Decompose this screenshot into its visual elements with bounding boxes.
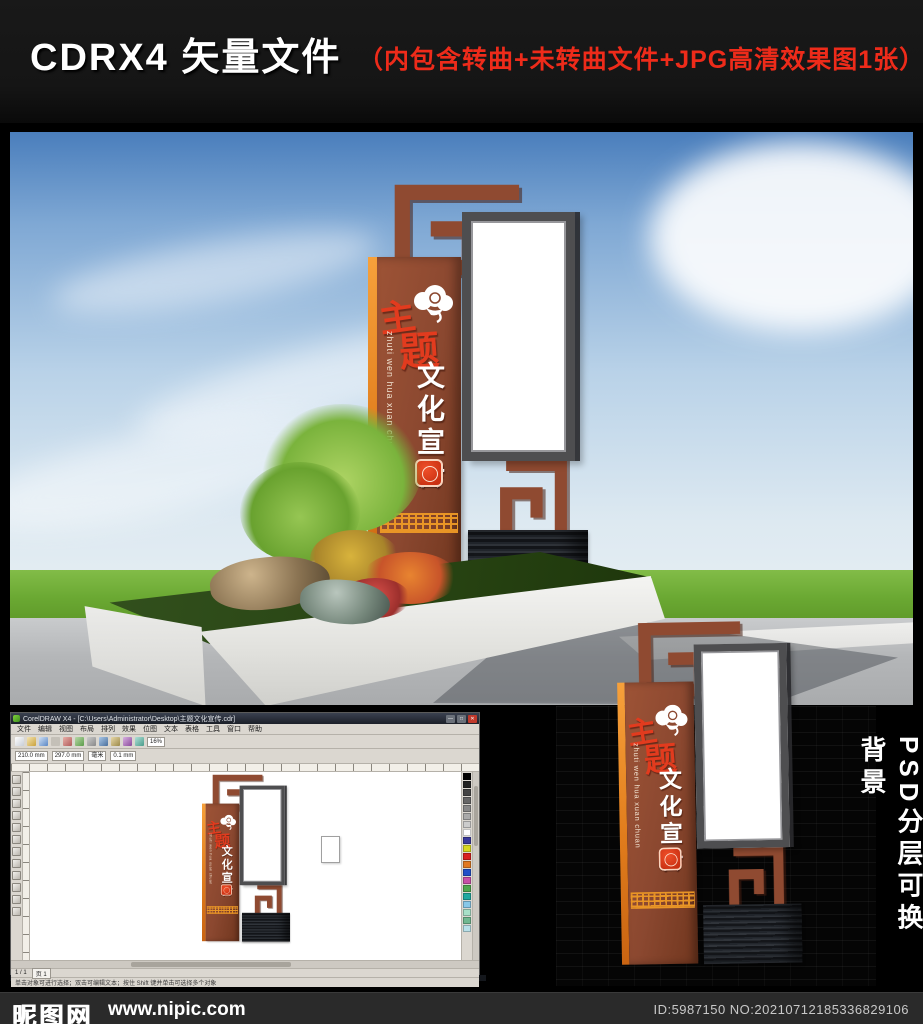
shape-tool-icon[interactable] [12, 787, 21, 796]
menu-layout[interactable]: 布局 [80, 724, 94, 734]
fret-border-band [207, 906, 238, 914]
vertical-ruler [23, 772, 30, 960]
palette-swatch[interactable] [463, 845, 471, 852]
freehand-tool-icon[interactable] [12, 823, 21, 832]
palette-swatch[interactable] [463, 901, 471, 908]
horizontal-ruler [11, 764, 479, 772]
import-icon[interactable] [123, 737, 132, 746]
undo-icon[interactable] [99, 737, 108, 746]
text-tool-icon[interactable] [12, 883, 21, 892]
secondary-signpost-render: 主 题 zhuti wen hua xuan chuan 文化宣传 [616, 615, 811, 971]
footer-bar: 昵图网 www.nipic.com ID:5987150 NO:20210712… [0, 992, 923, 1024]
menu-bar: 文件 编辑 视图 布局 排列 效果 位图 文本 表格 工具 窗口 帮助 [11, 724, 479, 735]
palette-swatch[interactable] [463, 909, 471, 916]
fill-tool-icon[interactable] [12, 907, 21, 916]
pick-tool-icon[interactable] [12, 775, 21, 784]
page-tab[interactable]: 页 1 [32, 968, 51, 979]
ellipse-tool-icon[interactable] [12, 859, 21, 868]
title-bar[interactable]: CorelDRAW X4 - [C:\Users\Administrator\D… [11, 713, 479, 724]
page-height-field[interactable]: 297.0 mm [52, 751, 85, 761]
palette-swatch[interactable] [463, 805, 471, 812]
page-subtitle: （内包含转曲+未转曲文件+JPG高清效果图1张） [358, 40, 923, 76]
save-icon[interactable] [39, 737, 48, 746]
palette-swatch[interactable] [463, 917, 471, 924]
sign-panel: 主 题 zhuti wen hua xuan chuan 文化宣传 [206, 804, 240, 942]
palette-swatch[interactable] [463, 813, 471, 820]
redo-icon[interactable] [111, 737, 120, 746]
nudge-field[interactable]: 0.1 mm [110, 751, 136, 761]
print-icon[interactable] [51, 737, 60, 746]
menu-edit[interactable]: 编辑 [38, 724, 52, 734]
color-palette [461, 772, 472, 960]
page: CDRX4 矢量文件 （内包含转曲+未转曲文件+JPG高清效果图1张） [0, 0, 923, 1024]
new-icon[interactable] [15, 737, 24, 746]
smart-fill-tool-icon[interactable] [12, 835, 21, 844]
export-icon[interactable] [135, 737, 144, 746]
menu-arrange[interactable]: 排列 [101, 724, 115, 734]
menu-tools[interactable]: 工具 [206, 724, 220, 734]
psd-layer-note: PSD分层可换背景 [854, 736, 923, 946]
coreldraw-window: CorelDRAW X4 - [C:\Users\Administrator\D… [10, 712, 480, 975]
palette-swatch[interactable] [463, 877, 471, 884]
round-seal-icon [659, 847, 682, 870]
menu-bitmaps[interactable]: 位图 [143, 724, 157, 734]
palette-swatch[interactable] [463, 789, 471, 796]
page-width-field[interactable]: 210.0 mm [15, 751, 48, 761]
menu-text[interactable]: 文本 [164, 724, 178, 734]
main-signpost: 主 题 zhuti wen hua xuan chuan 文化宣传 [368, 178, 598, 608]
palette-swatch[interactable] [463, 821, 471, 828]
minimize-button[interactable]: — [446, 715, 455, 723]
palette-swatch[interactable] [463, 773, 471, 780]
zoom-level-box[interactable]: 16% [147, 737, 165, 747]
page-indicator: 1 / 1 [15, 970, 27, 976]
sign-panel: 主 题 zhuti wen hua xuan chuan 文化宣传 [625, 681, 699, 964]
menu-help[interactable]: 帮助 [248, 724, 262, 734]
window-controls: — □ ✕ [446, 715, 477, 723]
scrollbar-thumb[interactable] [474, 786, 478, 846]
paste-icon[interactable] [87, 737, 96, 746]
palette-swatch[interactable] [463, 781, 471, 788]
palette-swatch[interactable] [463, 893, 471, 900]
table-tool-icon[interactable] [12, 895, 21, 904]
workspace: 主 题 zhuti wen hua xuan chuan 文化宣传 [11, 772, 479, 960]
palette-swatch[interactable] [463, 837, 471, 844]
image-id-text: ID:5987150 NO:20210712185336829106 [653, 1002, 909, 1017]
lightbox-panel [240, 786, 285, 886]
vector-signpost-drawing: 主 题 zhuti wen hua xuan chuan 文化宣传 [202, 772, 294, 944]
menu-effects[interactable]: 效果 [122, 724, 136, 734]
maximize-button[interactable]: □ [457, 715, 466, 723]
coreldraw-app-icon [13, 715, 20, 722]
property-bar: 210.0 mm 297.0 mm 毫米 0.1 mm [11, 749, 479, 764]
cut-icon[interactable] [63, 737, 72, 746]
palette-swatch[interactable] [463, 853, 471, 860]
scrollbar-thumb[interactable] [131, 962, 291, 967]
status-hint: 单击对象可进行选择；双击可编辑文本；按住 Shift 键并单击可选择多个对象 [15, 978, 216, 987]
lightbox-panel [462, 212, 575, 461]
window-title: CorelDRAW X4 - [C:\Users\Administrator\D… [23, 714, 446, 724]
standard-toolbar: 16% [11, 735, 479, 749]
horizontal-scrollbar[interactable] [11, 960, 479, 968]
stone-base [703, 903, 802, 964]
site-url[interactable]: www.nipic.com [108, 999, 246, 1021]
status-bar: 单击对象可进行选择；双击可编辑文本；按住 Shift 键并单击可选择多个对象 [11, 977, 479, 987]
palette-swatch[interactable] [463, 885, 471, 892]
stone-base [242, 913, 290, 942]
fret-border-band [631, 891, 695, 909]
menu-table[interactable]: 表格 [185, 724, 199, 734]
drawing-canvas[interactable]: 主 题 zhuti wen hua xuan chuan 文化宣传 [30, 772, 461, 960]
lightbox-panel [694, 643, 790, 849]
open-icon[interactable] [27, 737, 36, 746]
vertical-scrollbar[interactable] [472, 772, 479, 960]
palette-swatch[interactable] [463, 869, 471, 876]
polygon-tool-icon[interactable] [12, 871, 21, 880]
page-navigator: 1 / 1 页 1 [11, 968, 479, 977]
zoom-tool-icon[interactable] [12, 811, 21, 820]
nipic-logo: 昵图网 [12, 996, 93, 1024]
palette-swatch[interactable] [463, 861, 471, 868]
menu-view[interactable]: 视图 [59, 724, 73, 734]
palette-swatch[interactable] [463, 797, 471, 804]
menu-file[interactable]: 文件 [17, 724, 31, 734]
units-dropdown[interactable]: 毫米 [88, 751, 106, 761]
palette-swatch[interactable] [463, 925, 471, 932]
palette-swatch[interactable] [463, 829, 471, 836]
page-title: CDRX4 矢量文件 [30, 26, 341, 81]
header: CDRX4 矢量文件 （内包含转曲+未转曲文件+JPG高清效果图1张） [0, 0, 923, 123]
close-button[interactable]: ✕ [468, 715, 477, 723]
copy-icon[interactable] [75, 737, 84, 746]
crop-tool-icon[interactable] [12, 799, 21, 808]
round-seal-icon [221, 884, 232, 895]
menu-window[interactable]: 窗口 [227, 724, 241, 734]
toolbox [11, 772, 23, 960]
rectangle-tool-icon[interactable] [12, 847, 21, 856]
blank-page-object[interactable] [321, 836, 340, 863]
